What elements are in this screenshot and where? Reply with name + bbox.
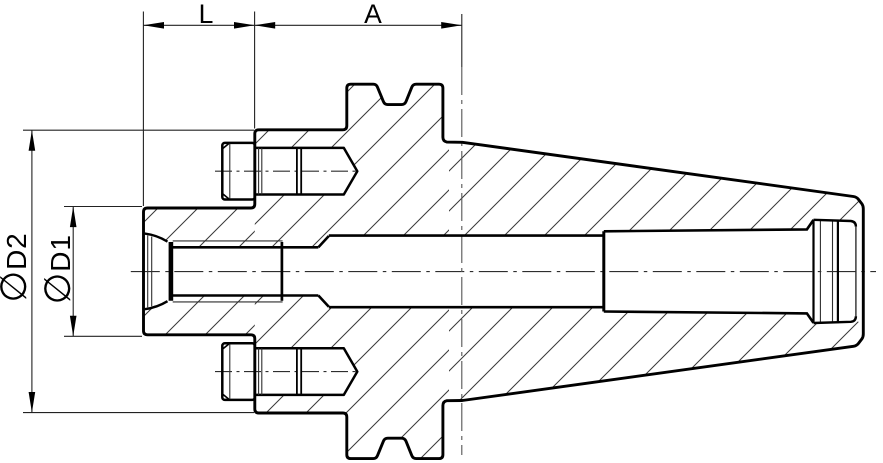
svg-text:A: A bbox=[364, 0, 382, 29]
svg-text:∅D2: ∅D2 bbox=[0, 232, 34, 302]
svg-text:L: L bbox=[199, 0, 214, 29]
